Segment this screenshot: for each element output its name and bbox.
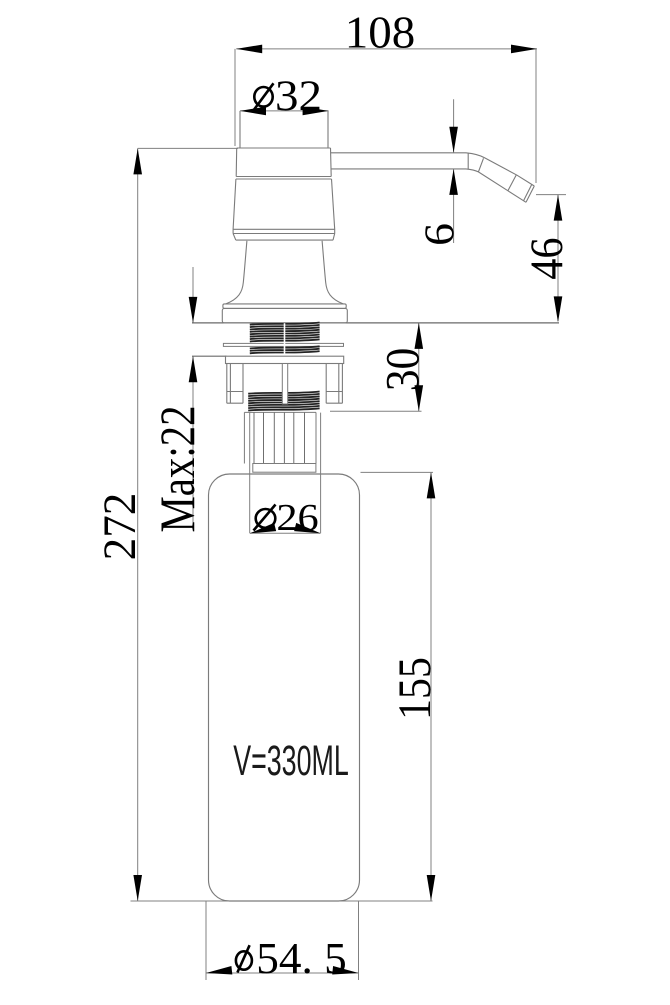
svg-text:54. 5: 54. 5 [256,933,347,983]
svg-text:108: 108 [345,8,415,58]
svg-text:26: 26 [276,496,318,539]
svg-text:155: 155 [388,657,441,720]
svg-text:Max:22: Max:22 [149,405,205,532]
svg-text:46: 46 [520,237,572,279]
svg-text:30: 30 [376,348,429,392]
svg-text:32: 32 [275,72,322,120]
svg-text:6: 6 [416,223,463,246]
svg-text:272: 272 [93,493,145,561]
svg-text:V=330ML: V=330ML [233,737,349,785]
